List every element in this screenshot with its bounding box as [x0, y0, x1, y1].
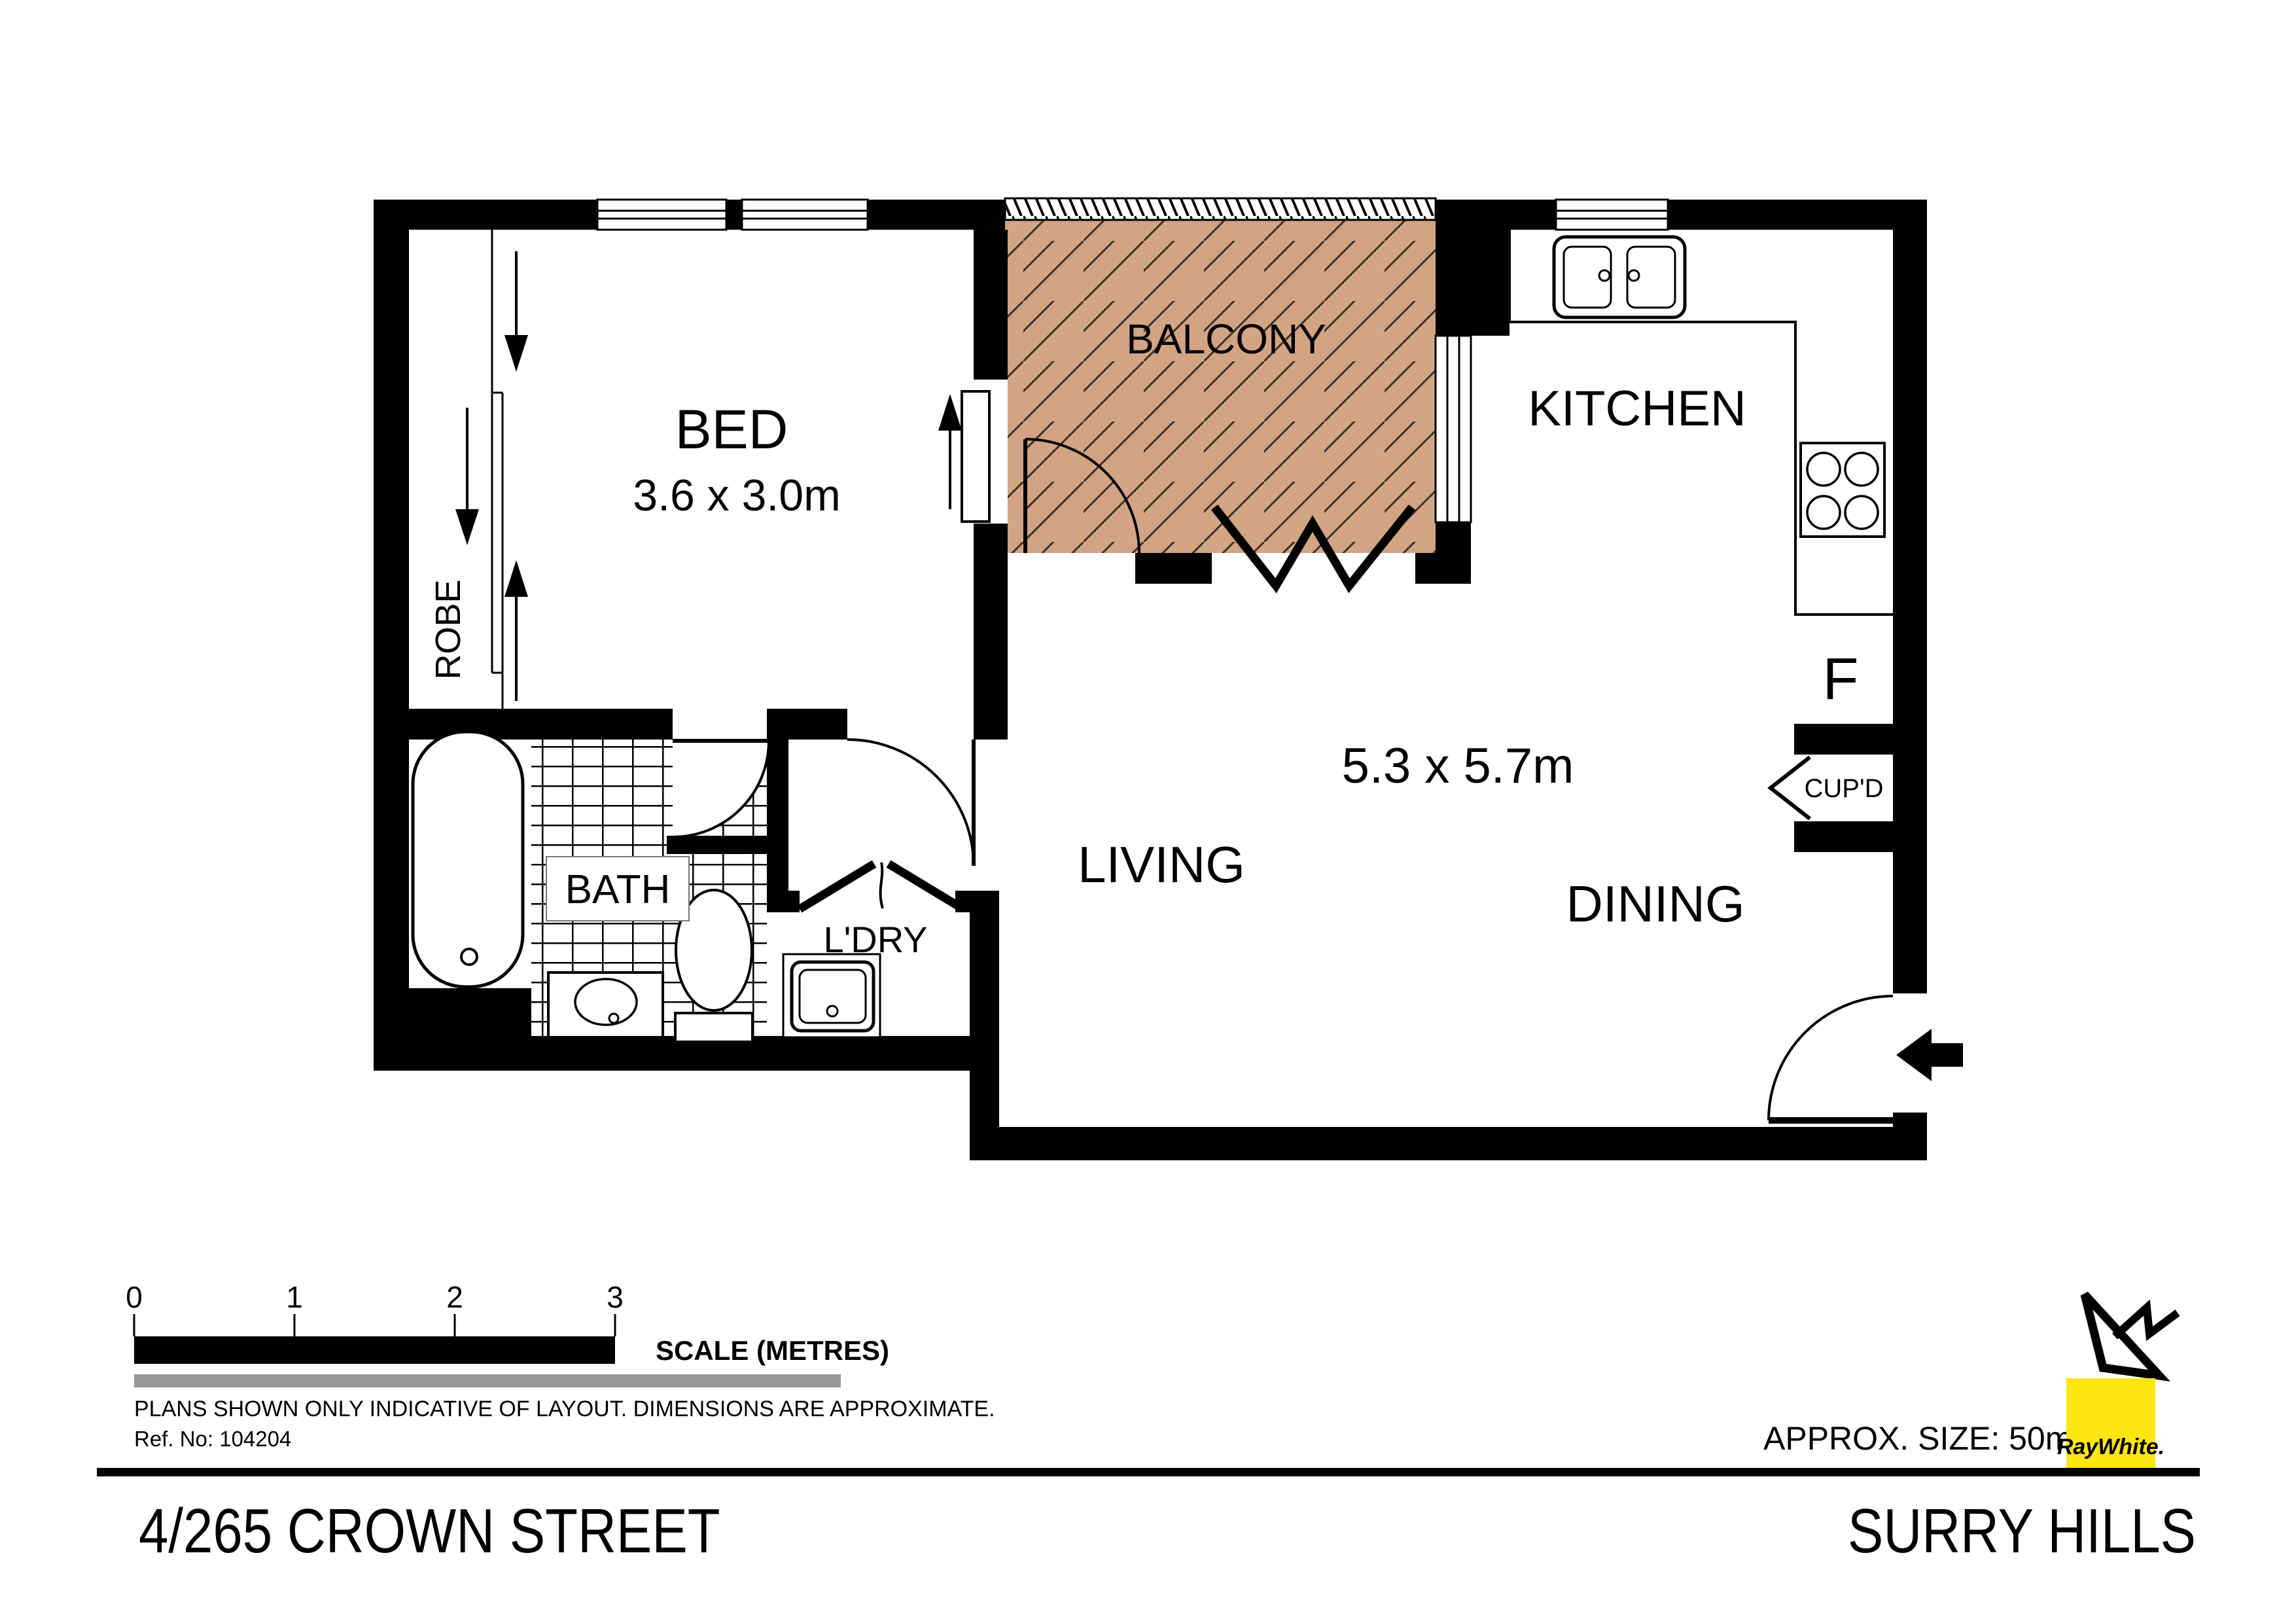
scale-tick-1: 1	[286, 1280, 303, 1314]
wall-under-tub	[404, 988, 531, 1041]
dining-label: DINING	[1566, 875, 1745, 933]
bed-label: BED	[675, 399, 788, 460]
fridge-label: F	[1823, 647, 1859, 712]
bath-label-group: BATH	[546, 857, 689, 921]
bed-window-1	[597, 200, 726, 230]
wall-kitchen-corner-column	[1471, 230, 1510, 336]
stove-cooktop	[1801, 443, 1884, 537]
balcony-railing	[1005, 198, 1436, 220]
wall-bed-bottom	[374, 709, 673, 740]
address-street: 4/265 CROWN STREET	[139, 1495, 720, 1566]
living-label: LIVING	[1078, 836, 1245, 893]
wall-left	[374, 200, 409, 1071]
address-suburb: SURRY HILLS	[1848, 1495, 2196, 1566]
kitchen-window	[1556, 200, 1668, 230]
cupboard-label: CUP'D	[1805, 774, 1884, 803]
wall-bed-balcony-divider-upper	[974, 230, 1008, 380]
balcony-floor-hatch	[1005, 220, 1436, 553]
scale-bar-black	[134, 1336, 615, 1364]
wall-cupboard-bottom	[1794, 821, 1893, 852]
wall-right-upper	[1893, 200, 1927, 993]
scale-tick-3: 3	[607, 1280, 624, 1314]
scale-tick-2: 2	[446, 1280, 463, 1314]
wall-top-kitchen-right	[1668, 200, 1927, 230]
footer-divider	[97, 1468, 2200, 1476]
living-dining-dims: 5.3 x 5.7m	[1342, 738, 1574, 794]
wall-laundry-right-step	[970, 891, 999, 1160]
scale-label: SCALE (METRES)	[656, 1335, 889, 1366]
wall-window-mullion	[726, 200, 742, 230]
balcony-kitchen-window	[1436, 336, 1471, 522]
laundry-tub	[783, 954, 880, 1037]
laundry-label: L'DRY	[823, 919, 927, 960]
bed-dims: 3.6 x 3.0m	[633, 471, 841, 520]
scale-tick-0: 0	[126, 1280, 143, 1314]
wall-balcony-bottom-mid	[1135, 553, 1212, 584]
wall-hall-divider	[974, 524, 1008, 740]
bed-balcony-sliding-door	[962, 380, 1008, 524]
balcony-area	[1005, 198, 1436, 553]
wall-toilet-screen	[667, 836, 788, 854]
bath-label: BATH	[565, 867, 671, 912]
wall-top-bed-right	[868, 200, 1005, 230]
bed-window-2	[742, 200, 868, 230]
vanity-basin	[548, 972, 663, 1037]
kitchen-label: KITCHEN	[1528, 381, 1746, 437]
wall-cupboard-top	[1794, 724, 1893, 755]
floorplan-sheet: BED 3.6 x 3.0m BALCONY KITCHEN 5.3 x 5.7…	[0, 0, 2296, 1623]
sliding-door-panel	[962, 391, 989, 522]
kitchen-sink	[1554, 237, 1685, 317]
bathtub	[413, 732, 523, 987]
ref-number: Ref. No: 104204	[134, 1427, 291, 1451]
wall-bifold-left-stub	[767, 891, 800, 912]
wall-right-entry-corner	[1893, 1113, 1927, 1160]
robe-label: ROBE	[429, 579, 468, 679]
wall-bath-laundry	[767, 709, 788, 912]
balcony-label: BALCONY	[1126, 315, 1326, 363]
raywhite-wordmark: RayWhite.	[2057, 1435, 2164, 1459]
wall-bottom-living	[970, 1127, 1927, 1160]
disclaimer-text: PLANS SHOWN ONLY INDICATIVE OF LAYOUT. D…	[134, 1397, 995, 1421]
approx-size: APPROX. SIZE: 50m²	[1763, 1420, 2083, 1457]
scale-gray-bar	[134, 1374, 841, 1387]
